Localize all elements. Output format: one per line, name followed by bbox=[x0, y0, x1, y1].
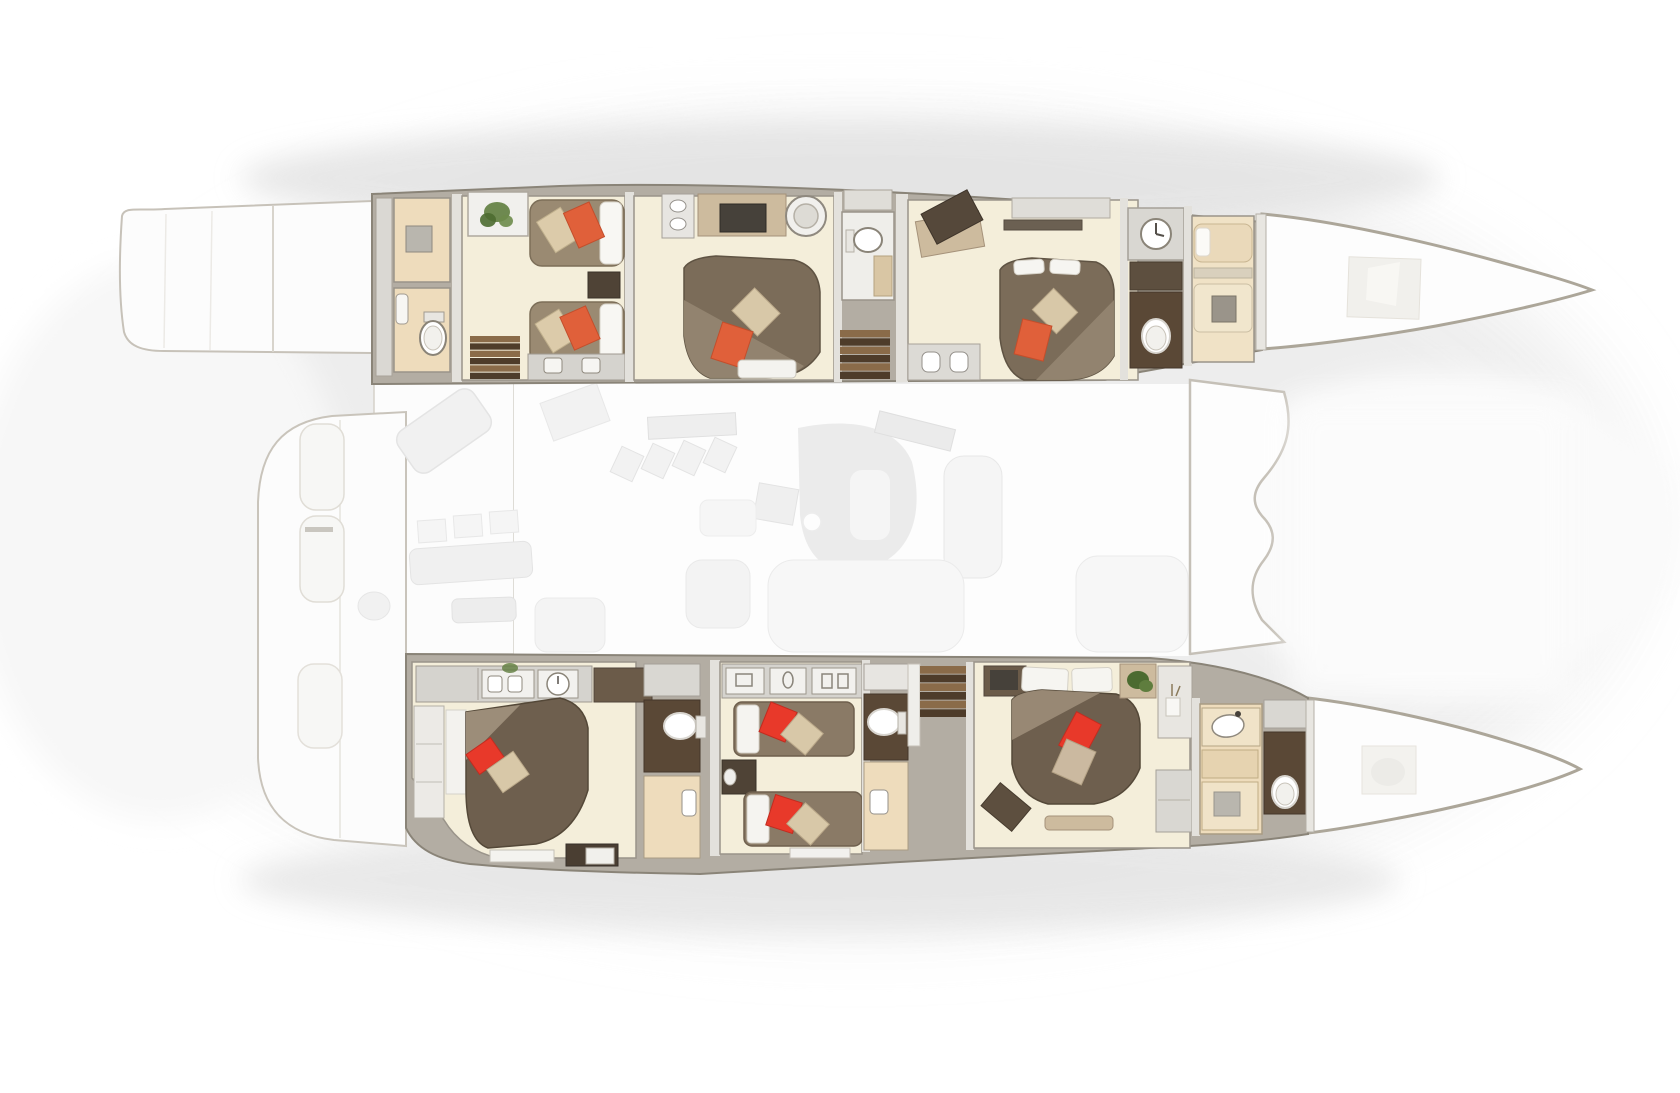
sb-wall-1 bbox=[452, 194, 462, 382]
sb-twin-sink-2 bbox=[582, 358, 600, 373]
pt-wc2-toilet bbox=[868, 709, 900, 735]
sb-vip-washer-door bbox=[794, 204, 818, 228]
pt-stairs-step bbox=[920, 683, 966, 691]
pt-wc1-toilet bbox=[664, 713, 696, 739]
pt-counter-plant bbox=[502, 663, 518, 673]
ghost-helm-seat bbox=[850, 470, 890, 540]
pt-master-vase bbox=[1166, 698, 1180, 716]
sb-owner-fixture-1 bbox=[922, 352, 940, 372]
sb-owner-top-cabinet bbox=[1012, 198, 1110, 218]
sb-shower-head bbox=[406, 226, 432, 252]
pt-bath-cabinet bbox=[1202, 750, 1258, 778]
pt-stairs-step bbox=[920, 701, 966, 709]
sb-crew-pillow bbox=[1196, 228, 1210, 256]
ghost-bench-back-1 bbox=[417, 519, 446, 543]
sb-vip-sink-a bbox=[670, 200, 686, 212]
ambient-light-bottom-margin bbox=[0, 1005, 1680, 1093]
pt-twin-panel-3 bbox=[812, 668, 856, 694]
catamaran-floor-plan bbox=[0, 0, 1680, 1093]
pt-stairs-step bbox=[920, 709, 966, 717]
pt-aft-dark-shelf bbox=[594, 668, 652, 702]
sb-wc-sink bbox=[396, 294, 408, 324]
pt-aft-bench-white bbox=[490, 850, 554, 862]
ghost-lounge-right bbox=[1076, 556, 1188, 652]
pt-bath-mat bbox=[1214, 792, 1240, 816]
sb-fwd-stairs-step bbox=[840, 363, 890, 370]
deck-plan-svg bbox=[0, 0, 1680, 1093]
sb-twin-sink-1 bbox=[544, 358, 562, 373]
pt-aft-locker-left bbox=[414, 706, 444, 818]
sb-owner-lockers bbox=[908, 344, 980, 380]
sb-wall-2 bbox=[625, 192, 634, 382]
pt-stairs-wall bbox=[908, 664, 920, 746]
sb-vip-sink-b bbox=[670, 218, 686, 230]
ghost-saloon-table bbox=[700, 500, 756, 536]
ghost-bench-back-2 bbox=[453, 514, 482, 538]
ghost-saloon-bench bbox=[647, 413, 736, 440]
sb-midbath-locker bbox=[844, 190, 892, 210]
ghost-lounge-wide bbox=[768, 560, 964, 652]
ambient-light-top-margin bbox=[0, 0, 1680, 70]
sb-owner-pillow-white-2 bbox=[1050, 259, 1081, 275]
sb-companionway-stairs-step bbox=[470, 343, 520, 349]
sb-vip-foot-bench bbox=[738, 360, 796, 378]
pt-wc1-floor-wood bbox=[644, 776, 700, 858]
sb-fwd-stairs-step bbox=[840, 347, 890, 354]
pt-wall-3 bbox=[966, 662, 974, 850]
bow-starboard-ghost-sail bbox=[1366, 262, 1400, 306]
sb-fwd-stairs-step bbox=[840, 355, 890, 362]
pt-twin-bed-b-head bbox=[747, 795, 769, 843]
pt-aft-sink-b bbox=[508, 676, 522, 692]
pt-master-locker-right bbox=[1156, 770, 1192, 832]
pt-aft-headboard-slats bbox=[446, 710, 466, 794]
ghost-cockpit-stool bbox=[358, 592, 390, 620]
pt-wall-1 bbox=[710, 660, 720, 856]
sb-bow-bulkhead bbox=[1256, 214, 1266, 350]
ghost-bench-back-3 bbox=[489, 510, 518, 534]
sb-fwd-stairs-step bbox=[840, 330, 890, 337]
sb-toilet-seat bbox=[424, 326, 442, 350]
sb-twin-bed-b-mattress bbox=[600, 304, 622, 362]
pt-wall-4 bbox=[1192, 698, 1200, 836]
ghost-cockpit-table bbox=[452, 597, 517, 623]
sb-midbath-cistern bbox=[846, 230, 854, 252]
ghost-saloon-sofa bbox=[944, 456, 1002, 578]
sb-twin-vanity bbox=[528, 354, 625, 380]
sb-companionway-stairs-step bbox=[470, 351, 520, 357]
sb-fwd-toilet-seat bbox=[1146, 326, 1166, 350]
ghost-locker-c bbox=[298, 664, 342, 748]
pt-wc2-cistern bbox=[898, 712, 906, 734]
ghost-seat-bl2 bbox=[535, 598, 605, 652]
sb-companionway-stairs-step bbox=[470, 365, 520, 371]
sb-owner-shelf bbox=[1004, 220, 1082, 230]
pt-aft-sink-a bbox=[488, 676, 502, 692]
pt-wc3-shelf bbox=[1264, 700, 1306, 728]
plant-leaf-b bbox=[480, 213, 496, 227]
ghost-locker-handle bbox=[305, 527, 333, 532]
pt-twin-panel-1 bbox=[726, 668, 764, 694]
pt-master-pillow-white-2 bbox=[1072, 667, 1113, 692]
plant-leaf-c bbox=[499, 215, 513, 227]
sb-midbath-toilet bbox=[854, 228, 882, 252]
sb-crew-shelf bbox=[1194, 268, 1252, 278]
sb-wall-4 bbox=[896, 194, 908, 382]
bow-port-ghost-winch bbox=[1371, 758, 1405, 786]
pt-wc1-shelf bbox=[644, 664, 700, 696]
sb-fwd-stairs-step bbox=[840, 338, 890, 345]
pt-bath-tap bbox=[1235, 711, 1241, 717]
pt-master-plant-b bbox=[1139, 680, 1153, 692]
sb-fwd-stairs-step bbox=[840, 372, 890, 379]
pt-twin-bench-white bbox=[790, 848, 850, 858]
pt-wc2-fixture bbox=[870, 790, 888, 814]
pt-bow-bulkhead bbox=[1306, 700, 1314, 832]
sb-wall-6 bbox=[1184, 206, 1192, 366]
sb-owner-fixture-2 bbox=[950, 352, 968, 372]
ghost-helm-wheel bbox=[803, 513, 821, 531]
ghost-locker-a bbox=[300, 424, 344, 510]
ghost-saloon-chairs bbox=[753, 483, 799, 525]
pt-master-foot-bench bbox=[1045, 816, 1113, 830]
pt-twin-bed-a-head bbox=[737, 705, 759, 753]
pt-master-pillow-white-1 bbox=[1021, 667, 1068, 693]
pt-stairs-step bbox=[920, 666, 966, 674]
pt-wc1-sink bbox=[682, 790, 696, 816]
pt-twin-nightstand-basin bbox=[724, 769, 736, 785]
sb-companionway-stairs-step bbox=[470, 373, 520, 379]
pt-wc2-shelf bbox=[864, 664, 908, 690]
sb-twin-nightstand bbox=[588, 272, 620, 298]
sb-aft-locker bbox=[376, 198, 392, 376]
sb-wall-5 bbox=[1120, 198, 1128, 380]
sb-vip-tv bbox=[720, 204, 766, 232]
pt-stairs-step bbox=[920, 692, 966, 700]
ghost-trampoline-area bbox=[1290, 400, 1570, 700]
pt-wc3-toilet-seat bbox=[1276, 783, 1294, 805]
sb-companionway-stairs-step bbox=[470, 358, 520, 364]
pt-aft-mat-fixture bbox=[586, 848, 614, 864]
sb-fwd-wardrobe bbox=[1130, 262, 1182, 290]
sb-owner-pillow-white-1 bbox=[1014, 259, 1045, 275]
ghost-seat-bl bbox=[686, 560, 750, 628]
sb-crew-hatch bbox=[1212, 296, 1236, 322]
pt-master-nightstand-top bbox=[990, 670, 1018, 690]
sb-midbath-bench bbox=[874, 256, 892, 296]
pt-wc1-cistern bbox=[696, 716, 706, 738]
sb-companionway-stairs-step bbox=[470, 336, 520, 342]
pt-stairs-step bbox=[920, 675, 966, 683]
ghost-stern-platform-port bbox=[120, 201, 372, 353]
